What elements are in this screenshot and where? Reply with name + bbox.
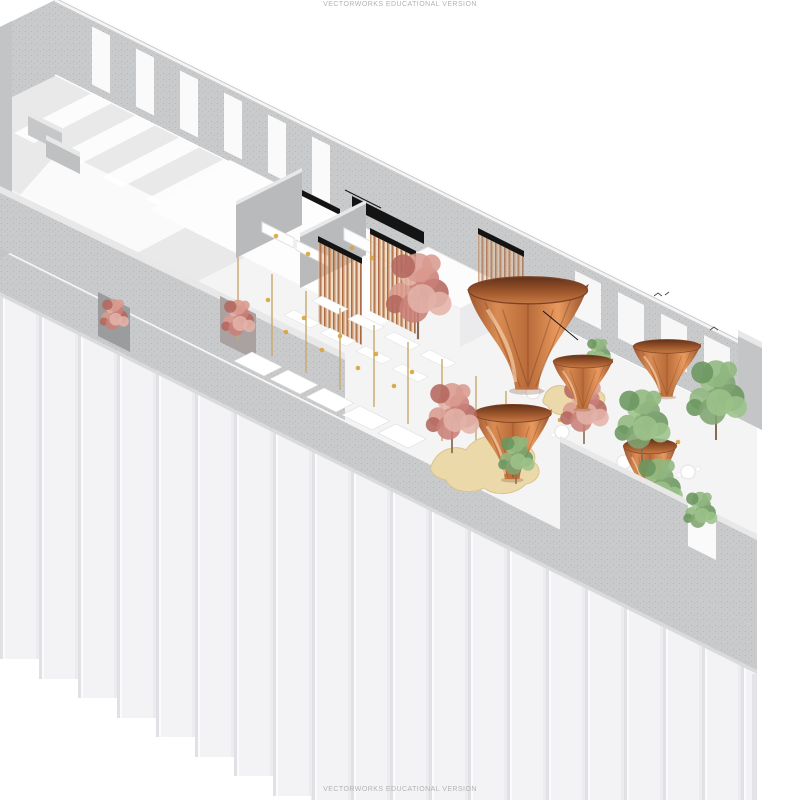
red-tree-foliage: [233, 316, 248, 331]
pendant-dot: [356, 366, 361, 371]
green-tree-foliage: [600, 339, 607, 346]
pendant-dot: [266, 298, 271, 303]
green-tree-foliage: [720, 362, 737, 379]
green-tree-foliage: [501, 437, 514, 450]
wall-gap: [312, 137, 330, 204]
pendant-dot: [320, 348, 325, 353]
pendant-dot: [302, 316, 307, 321]
wall-gap: [92, 27, 110, 94]
wall-gap: [224, 93, 242, 160]
pendant-dot: [392, 384, 397, 389]
green-tree-foliage: [518, 437, 528, 447]
green-tree-foliage: [510, 453, 526, 469]
red-tree-foliage: [109, 313, 122, 326]
chair: [677, 473, 681, 477]
green-tree-foliage: [695, 508, 710, 523]
red-tree-foliage: [407, 284, 436, 313]
pendant-dot: [410, 370, 415, 375]
axonometric-scene: [0, 0, 800, 800]
red-tree-foliage: [456, 384, 471, 399]
red-tree-foliage: [443, 408, 467, 432]
red-tree-foliage: [116, 300, 124, 308]
pendant-dot: [350, 246, 355, 251]
red-tree-foliage: [102, 300, 113, 311]
green-tree-foliage: [686, 492, 698, 504]
red-tree-foliage: [422, 254, 440, 272]
pendant-dot: [374, 352, 379, 357]
rendering-canvas: VECTORWORKS EDUCATIONAL VERSION VECTORWO…: [0, 0, 800, 800]
chair: [696, 467, 700, 471]
green-tree-foliage: [702, 492, 712, 502]
red-tree-foliage: [240, 300, 250, 310]
green-tree-foliage: [661, 459, 675, 473]
red-tree-foliage: [224, 300, 236, 312]
red-tree-foliage: [430, 384, 449, 403]
green-tree-foliage: [646, 391, 662, 407]
green-tree-foliage: [691, 362, 713, 384]
wall-gap: [136, 49, 154, 116]
green-tree-foliage: [638, 459, 656, 477]
wall-gap: [180, 71, 198, 138]
round-table: [555, 425, 569, 439]
pendant-dot: [338, 334, 343, 339]
round-table: [681, 465, 695, 479]
pendant-dot: [306, 252, 311, 257]
pendant-dot: [284, 330, 289, 335]
facade-right-edge: [752, 674, 757, 800]
green-tree-foliage: [633, 416, 658, 441]
red-tree-foliage: [391, 254, 415, 278]
green-tree-foliage: [587, 339, 597, 349]
green-tree-foliage: [706, 389, 733, 416]
pendant-dot: [370, 256, 375, 261]
chair: [551, 433, 555, 437]
green-tree-foliage: [619, 391, 639, 411]
pendant-dot: [274, 234, 279, 239]
wall-gap: [268, 115, 286, 182]
